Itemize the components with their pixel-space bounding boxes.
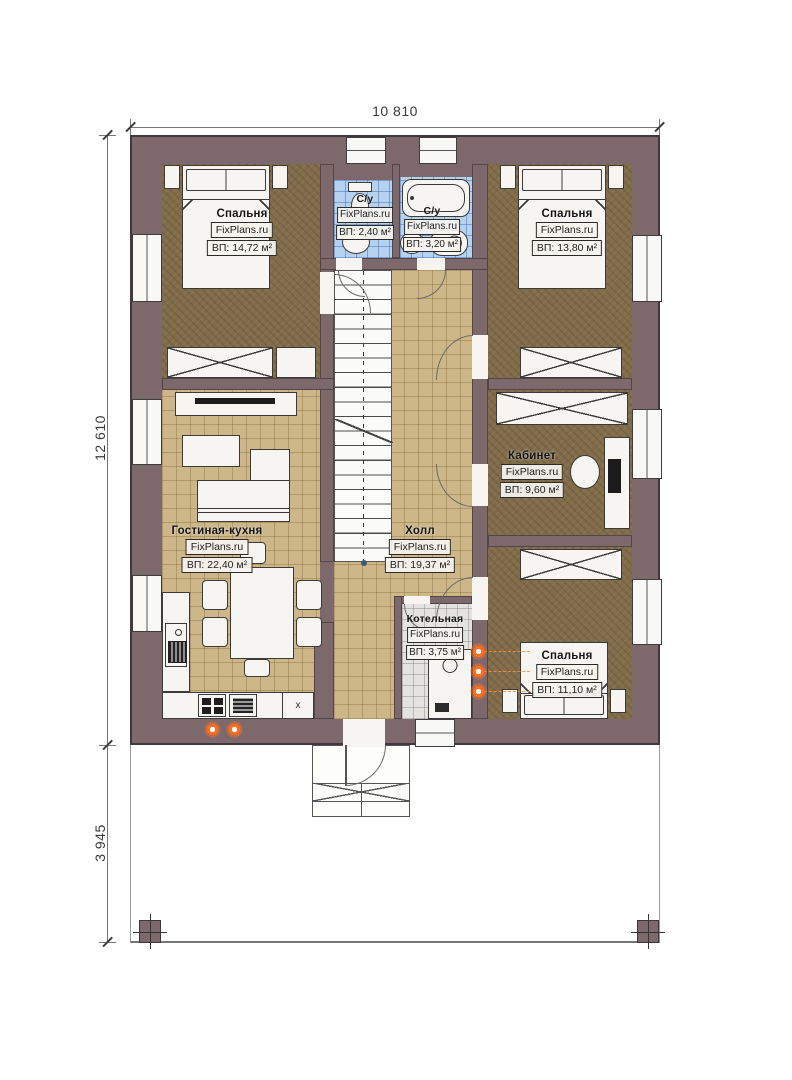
nightstand [164, 165, 180, 189]
heater-symbol [470, 683, 487, 700]
porch-column-right [637, 920, 659, 943]
window-kitchen [132, 575, 162, 632]
room-label-hall: Холл FixPlans.ru ВП: 19,37 м² [385, 525, 455, 573]
room-label-bedroom-top-right: Спальня FixPlans.ru ВП: 13,80 м² [532, 208, 602, 256]
room-area: ВП: 22,40 м² [182, 557, 252, 573]
steps-center-line [361, 783, 362, 816]
chair [244, 659, 270, 677]
shelf-top-left [276, 347, 316, 378]
coffee-table [182, 435, 240, 467]
wall-left-divider [320, 164, 334, 562]
window-bedroom-top-left [132, 234, 162, 302]
dimension-porch-height: 3 945 [92, 813, 108, 873]
door-bathroom-left [336, 258, 362, 270]
room-name: С/у [424, 205, 441, 217]
room-area: ВП: 13,80 м² [532, 240, 602, 256]
chair [296, 580, 322, 610]
nightstand [608, 165, 624, 189]
window-bedroom-top-right [632, 235, 662, 302]
room-label-bathroom-left: С/у FixPlans.ru ВП: 2,40 м² [336, 193, 394, 240]
chair [202, 580, 228, 610]
brand-watermark: FixPlans.ru [501, 464, 564, 480]
heater-symbol [470, 663, 487, 680]
room-name: Спальня [216, 208, 267, 220]
house-outer-walls: x Спальня FixPlans.ru ВП: 14,72 м² С/у F… [130, 135, 660, 745]
chair [296, 617, 322, 647]
room-label-bedroom-bottom: Спальня FixPlans.ru ВП: 11,10 м² [532, 650, 602, 698]
door-boiler [404, 596, 430, 604]
room-name: Котельная [407, 613, 464, 625]
cabinet-mark: x [296, 700, 301, 711]
wardrobe-top-right [520, 347, 622, 378]
room-label-bedroom-top-left: Спальня FixPlans.ru ВП: 14,72 м² [207, 208, 277, 256]
window-bedroom-bottom [632, 579, 662, 645]
nightstand [272, 165, 288, 189]
window-bathroom-right [419, 137, 457, 164]
wall-boiler-left [394, 596, 402, 719]
room-label-boiler: Котельная FixPlans.ru ВП: 3,75 м² [406, 613, 464, 660]
window-bathroom-left [346, 137, 386, 164]
tv [195, 398, 275, 404]
door-bedroom-bottom [472, 577, 488, 620]
heat-pipe [484, 651, 530, 652]
heat-pipe [484, 691, 530, 692]
wardrobe-office [496, 392, 628, 425]
staircase [334, 270, 392, 562]
window-office [632, 409, 662, 479]
chair [202, 617, 228, 647]
toilet-tank [348, 182, 372, 192]
sofa-chaise [250, 449, 290, 483]
dining-table [230, 567, 294, 659]
brand-watermark: FixPlans.ru [211, 222, 274, 238]
door-bedroom-top-left [320, 272, 334, 314]
brand-watermark: FixPlans.ru [407, 627, 463, 643]
nightstand [610, 689, 626, 713]
room-area: ВП: 3,75 м² [406, 645, 464, 661]
door-bedroom-top-right [472, 335, 488, 379]
room-area: ВП: 2,40 м² [336, 225, 394, 241]
wardrobe-bottom [520, 549, 622, 580]
heater-symbol [226, 721, 243, 738]
kitchen-cabinet: x [282, 692, 314, 719]
wall-bedroom-office [488, 378, 632, 390]
dimension-top-width: 10 810 [130, 103, 660, 119]
door-bathroom-right [417, 258, 445, 270]
floor-plan-canvas: 10 810 12 610 3 945 [0, 0, 792, 1080]
brand-watermark: FixPlans.ru [186, 539, 249, 555]
office-chair [570, 455, 600, 489]
wardrobe-top-left [167, 347, 273, 378]
heater-symbol [470, 643, 487, 660]
monitor [608, 459, 621, 493]
room-label-bathroom-right: С/у FixPlans.ru ВП: 3,20 м² [403, 205, 461, 252]
room-area: ВП: 3,20 м² [403, 237, 461, 253]
room-name: С/у [357, 193, 374, 205]
oven [229, 694, 257, 717]
room-area: ВП: 14,72 м² [207, 240, 277, 256]
door-office [472, 464, 488, 506]
nightstand [502, 689, 518, 713]
porch-column-left [139, 920, 161, 943]
brand-watermark: FixPlans.ru [389, 539, 452, 555]
room-area: ВП: 9,60 м² [500, 482, 564, 498]
wall-bedroom-living [162, 378, 334, 390]
bed-pillows [522, 169, 602, 191]
room-name: Спальня [541, 650, 592, 662]
bed-pillows [186, 169, 266, 191]
room-area: ВП: 19,37 м² [385, 557, 455, 573]
wall-office-bedroom [488, 535, 632, 547]
window-boiler [415, 719, 455, 747]
front-door-leaf [345, 745, 347, 785]
room-label-office: Кабинет FixPlans.ru ВП: 9,60 м² [500, 450, 564, 498]
room-area: ВП: 11,10 м² [532, 682, 602, 698]
room-name: Холл [405, 525, 435, 537]
stairs-direction-line [363, 271, 364, 563]
sofa [197, 480, 290, 522]
brand-watermark: FixPlans.ru [536, 664, 599, 680]
heat-pipe [484, 671, 530, 672]
brand-watermark: FixPlans.ru [536, 222, 599, 238]
brand-watermark: FixPlans.ru [337, 207, 393, 223]
dimension-line-top [130, 127, 660, 128]
room-label-living-kitchen: Гостиная-кухня FixPlans.ru ВП: 22,40 м² [172, 525, 263, 573]
window-living [132, 399, 162, 465]
wall-right-divider [472, 164, 488, 719]
tv-stand [175, 392, 297, 416]
room-name: Спальня [541, 208, 592, 220]
front-door-opening [343, 719, 385, 747]
heater-symbol [204, 721, 221, 738]
nightstand [500, 165, 516, 189]
stove [198, 694, 226, 717]
kitchen-sink [165, 623, 187, 667]
room-name: Кабинет [508, 450, 556, 462]
brand-watermark: FixPlans.ru [404, 219, 460, 235]
room-name: Гостиная-кухня [172, 525, 263, 537]
dimension-left-height: 12 610 [92, 408, 108, 468]
